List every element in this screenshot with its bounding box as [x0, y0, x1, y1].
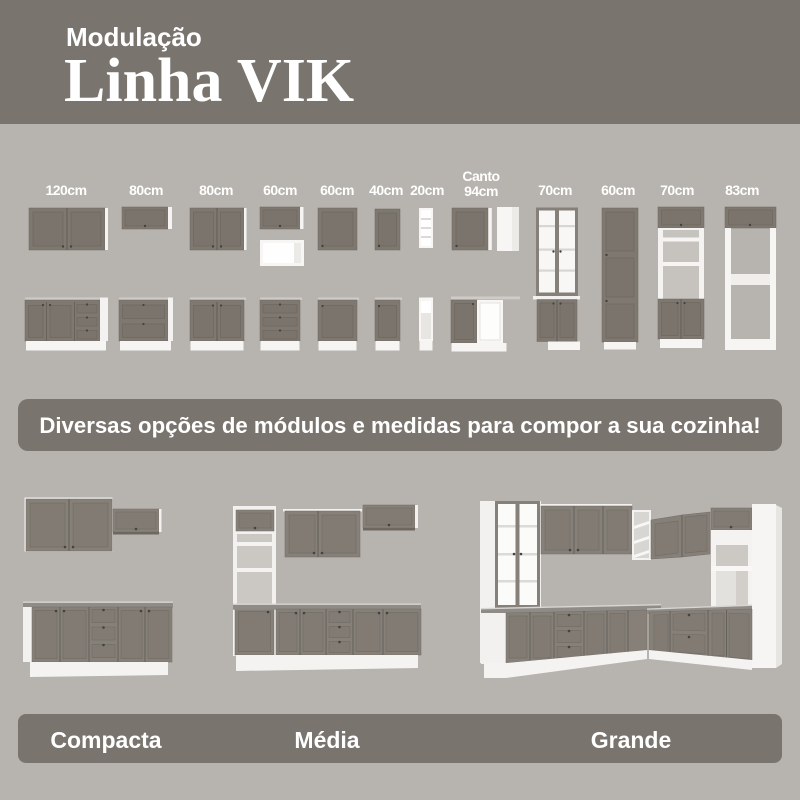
svg-text:70cm: 70cm	[538, 182, 572, 198]
svg-text:Linha VIK: Linha VIK	[64, 47, 354, 115]
svg-text:120cm: 120cm	[45, 182, 86, 198]
svg-text:Grande: Grande	[591, 727, 672, 753]
svg-text:20cm: 20cm	[410, 182, 444, 198]
svg-text:Média: Média	[294, 727, 359, 753]
svg-text:83cm: 83cm	[725, 182, 759, 198]
svg-text:60cm: 60cm	[601, 182, 635, 198]
svg-text:Diversas opções de módulos e m: Diversas opções de módulos e medidas par…	[39, 413, 760, 438]
svg-text:Compacta: Compacta	[50, 727, 161, 753]
svg-text:70cm: 70cm	[660, 182, 694, 198]
svg-text:80cm: 80cm	[199, 182, 233, 198]
svg-text:94cm: 94cm	[464, 183, 498, 199]
svg-text:60cm: 60cm	[320, 182, 354, 198]
svg-text:Canto: Canto	[462, 168, 499, 184]
svg-text:60cm: 60cm	[263, 182, 297, 198]
svg-text:80cm: 80cm	[129, 182, 163, 198]
svg-text:40cm: 40cm	[369, 182, 403, 198]
